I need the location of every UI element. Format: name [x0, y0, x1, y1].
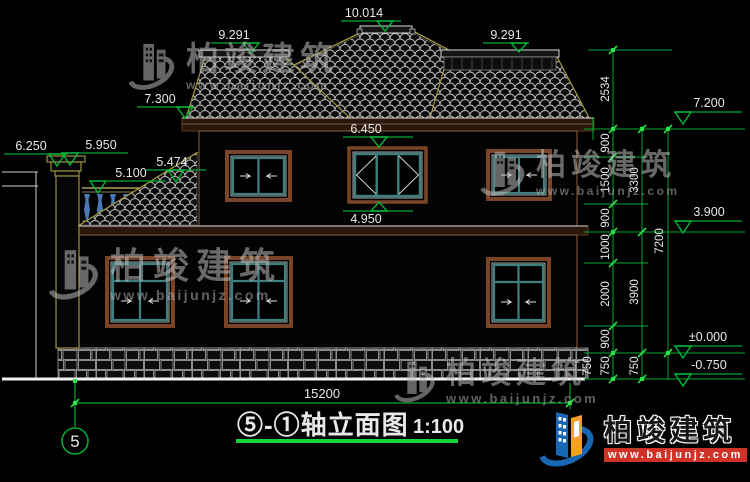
dim-label: 3300: [629, 167, 641, 193]
window-upper-left: [227, 152, 290, 200]
ridge-cap-left: [199, 50, 289, 57]
svg-text:±0.000: ±0.000: [689, 330, 727, 344]
dim-label: 7200: [654, 228, 666, 254]
svg-text:4.950: 4.950: [350, 212, 381, 226]
svg-text:7.300: 7.300: [144, 92, 175, 106]
elevation-marker-subridge-right: 9.291: [483, 28, 529, 52]
dim-total-width: 15200: [304, 386, 340, 401]
dim-label: 1500: [600, 167, 612, 193]
boundary-wall-left: [2, 172, 38, 378]
eave-band: [182, 118, 594, 131]
dim-label: 750: [629, 356, 641, 375]
elevation-marker-eave-left: 7.300: [137, 92, 193, 118]
svg-text:-0.750: -0.750: [691, 358, 726, 372]
title-underline: [236, 439, 458, 443]
dim-label: 900: [600, 133, 612, 152]
dim-grips: [611, 48, 670, 381]
svg-text:3.900: 3.900: [693, 205, 724, 219]
logo-mark-icon: [538, 406, 598, 472]
company-name: 柏竣建筑: [604, 416, 747, 445]
cad-canvas: 2534 900 1500 900 1000 2000 900 750 750 …: [0, 0, 750, 482]
dim-label: 2534: [600, 76, 612, 102]
dim-label: 900: [600, 329, 612, 348]
dim-label: 3900: [629, 279, 641, 305]
company-logo: 柏竣建筑 www.baijunjz.com: [538, 406, 747, 472]
dim-label: 2000: [600, 281, 612, 307]
svg-text:9.291: 9.291: [218, 28, 249, 42]
axis-bubble-number: 5: [70, 432, 79, 451]
dim-label: 750: [582, 356, 594, 375]
elevation-marker-eave-right: 7.200: [674, 96, 742, 124]
svg-text:5.100: 5.100: [115, 166, 146, 180]
elevation-marker-ground-floor: ±0.000: [674, 330, 742, 358]
svg-text:6.250: 6.250: [15, 139, 46, 153]
window-upper-center: [349, 148, 426, 202]
svg-text:9.291: 9.291: [490, 28, 521, 42]
axis-bubble: 5: [62, 428, 88, 454]
window-lower-left: [107, 258, 173, 326]
floor-band: [62, 226, 588, 235]
svg-text:7.200: 7.200: [693, 96, 724, 110]
dim-ticks: [609, 46, 672, 383]
dim-label: 750: [600, 356, 612, 375]
elevation-marker-subridge-left: 9.291: [211, 28, 259, 53]
elevation-marker-parapet: 5.950: [62, 138, 128, 165]
elevation-marker-second-floor: 3.900: [674, 205, 742, 233]
right-roof-wing: [430, 50, 593, 125]
svg-text:6.450: 6.450: [350, 122, 381, 136]
window-lower-right: [488, 259, 549, 326]
svg-text:10.014: 10.014: [345, 6, 383, 20]
drawing-title-text: ⑤-①轴立面图: [237, 410, 409, 440]
svg-text:5.950: 5.950: [85, 138, 116, 152]
svg-text:5.474: 5.474: [156, 155, 187, 169]
dim-label: 900: [600, 208, 612, 227]
drawing-scale-text: 1:100: [413, 416, 464, 438]
chimney: [47, 156, 85, 348]
dim-label: 1000: [600, 234, 612, 260]
stone-base: [58, 348, 588, 378]
drawing-title: ⑤-①轴立面图 1:100: [236, 410, 464, 443]
company-url: www.baijunjz.com: [604, 448, 747, 462]
window-upper-right: [488, 151, 550, 199]
elevation-marker-site-ground: -0.750: [674, 358, 742, 386]
ridge-cap-right: [441, 50, 559, 57]
window-lower-center: [226, 258, 291, 326]
